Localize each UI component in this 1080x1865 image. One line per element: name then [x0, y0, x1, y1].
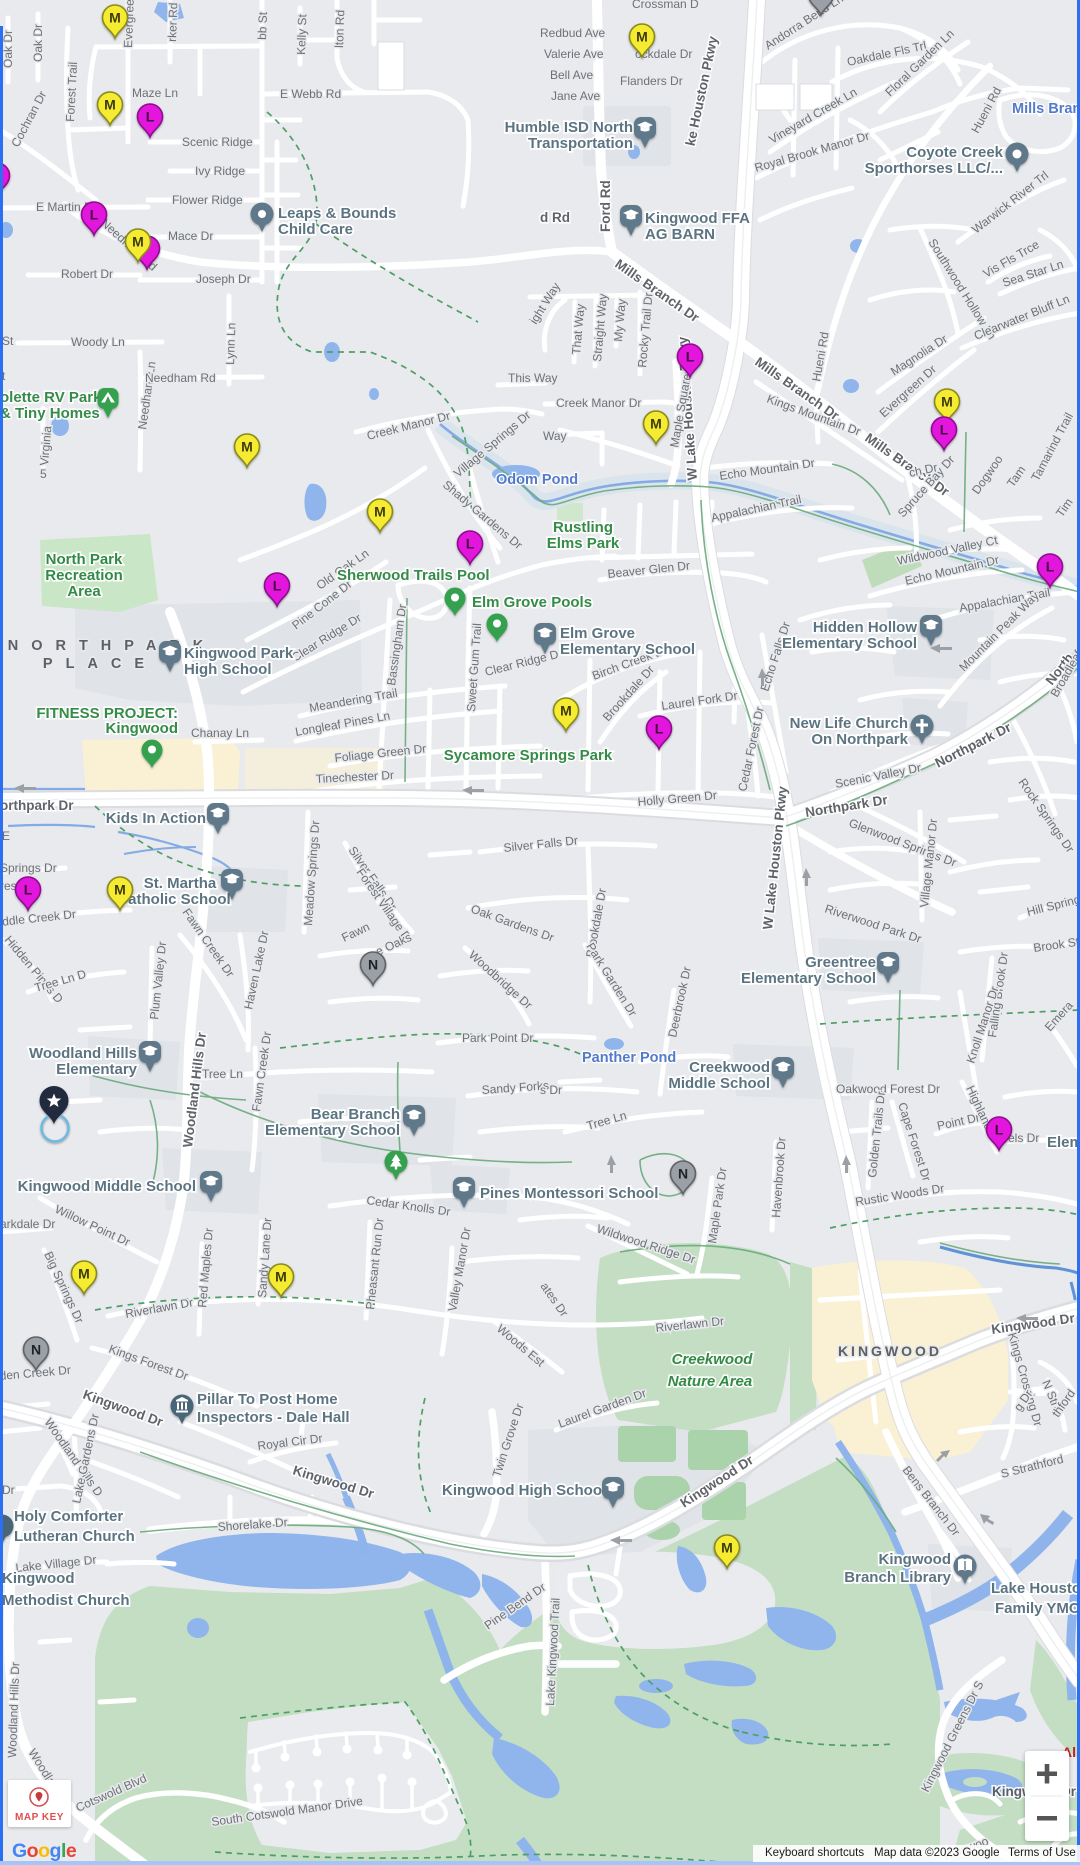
svg-text:Creek Manor Dr: Creek Manor Dr — [556, 396, 641, 410]
svg-text:St. Martha: St. Martha — [144, 875, 217, 892]
svg-text:Dr: Dr — [2, 1483, 15, 1497]
svg-text:Creekwood: Creekwood — [689, 1059, 770, 1076]
svg-text:& Tiny Homes: & Tiny Homes — [0, 405, 100, 422]
svg-text:N: N — [31, 1342, 41, 1358]
svg-text:Transportation: Transportation — [528, 135, 633, 152]
svg-text:Bear Branch: Bear Branch — [311, 1106, 400, 1123]
svg-text:Coyote Creek: Coyote Creek — [906, 144, 1003, 161]
svg-text:Hidden Hollow: Hidden Hollow — [813, 619, 917, 636]
svg-text:orthpark Dr: orthpark Dr — [0, 798, 74, 813]
svg-text:New Life Church: New Life Church — [790, 715, 908, 732]
svg-text:Woodland Hills: Woodland Hills — [29, 1045, 137, 1062]
svg-text:Leaps & Bounds: Leaps & Bounds — [278, 205, 396, 222]
svg-text:E Webb Rd: E Webb Rd — [280, 87, 341, 101]
svg-text:M: M — [241, 439, 253, 455]
svg-text:Oakwood Forest Dr: Oakwood Forest Dr — [836, 1082, 940, 1096]
svg-text:M: M — [650, 416, 662, 432]
svg-text:Inspectors - Dale Hall: Inspectors - Dale Hall — [197, 1409, 350, 1426]
svg-text:Elementary School: Elementary School — [265, 1122, 400, 1139]
svg-text:Branch Library: Branch Library — [844, 1569, 951, 1586]
svg-text:M: M — [941, 394, 953, 410]
svg-text:rker Rd: rker Rd — [165, 2, 180, 42]
svg-text:On Northpark: On Northpark — [811, 731, 908, 748]
svg-text:Oak Dr: Oak Dr — [31, 24, 45, 62]
svg-text:Elm Grove: Elm Grove — [560, 625, 635, 642]
svg-text:Odom Pond: Odom Pond — [496, 472, 578, 488]
svg-text:Valerie Ave: Valerie Ave — [544, 47, 604, 61]
svg-text:Flower Ridge: Flower Ridge — [172, 193, 243, 207]
svg-text:N: N — [368, 957, 378, 973]
svg-text:Elms Park: Elms Park — [547, 535, 620, 552]
svg-text:High School: High School — [184, 661, 272, 678]
svg-text:KINGWOOD: KINGWOOD — [838, 1343, 942, 1359]
svg-text:Kingwood Park: Kingwood Park — [184, 645, 294, 662]
svg-text:Robert Dr: Robert Dr — [61, 267, 113, 281]
svg-text:Redbud Ave: Redbud Ave — [540, 26, 605, 40]
svg-text:Needham Rd: Needham Rd — [145, 371, 216, 385]
svg-text:Pines Montessori School: Pines Montessori School — [480, 1185, 658, 1202]
svg-text:Maze Ln: Maze Ln — [132, 86, 178, 100]
svg-text:L: L — [995, 1122, 1004, 1138]
svg-text:This Way: This Way — [508, 371, 558, 385]
svg-text:Recreation: Recreation — [45, 567, 123, 584]
svg-text:Elementary School: Elementary School — [560, 641, 695, 658]
svg-text:Ivy Ridge: Ivy Ridge — [195, 164, 245, 178]
svg-text:L: L — [146, 109, 155, 125]
svg-text:s Dr: s Dr — [540, 1083, 562, 1097]
svg-text:Tree Ln: Tree Ln — [202, 1067, 243, 1081]
svg-text:M: M — [721, 1540, 733, 1556]
svg-text:M: M — [114, 882, 126, 898]
svg-text:M: M — [560, 703, 572, 719]
svg-text:L: L — [466, 536, 475, 552]
svg-text:lton Rd: lton Rd — [332, 10, 347, 48]
svg-text:Rustling: Rustling — [553, 519, 613, 536]
svg-text:Joseph Dr: Joseph Dr — [196, 272, 251, 286]
svg-text:Scenic Ridge: Scenic Ridge — [182, 135, 253, 149]
svg-text:Sycamore Springs Park: Sycamore Springs Park — [444, 747, 613, 764]
svg-text:Chanay Ln: Chanay Ln — [191, 726, 249, 740]
svg-text:Lake Housto: Lake Housto — [991, 1580, 1080, 1597]
svg-text:Middle School: Middle School — [668, 1075, 770, 1092]
svg-text:L: L — [655, 721, 664, 737]
svg-text:Mace Dr: Mace Dr — [168, 229, 213, 243]
svg-text:Humble ISD North: Humble ISD North — [505, 119, 633, 136]
svg-text:Nature Area: Nature Area — [668, 1373, 752, 1390]
svg-text:Elm Grove Pools: Elm Grove Pools — [472, 594, 592, 611]
svg-text:Child Care: Child Care — [278, 221, 353, 238]
svg-text:M: M — [104, 97, 116, 113]
svg-text:Mills Branc: Mills Branc — [1012, 101, 1080, 117]
svg-text:Way: Way — [543, 429, 567, 443]
svg-text:Elementary School: Elementary School — [782, 635, 917, 652]
svg-text:d Rd: d Rd — [540, 210, 570, 225]
svg-text:L: L — [24, 882, 33, 898]
svg-text:PLACE: PLACE — [43, 656, 157, 672]
svg-text:Springs Dr: Springs Dr — [0, 861, 57, 875]
svg-text:St: St — [2, 334, 14, 348]
svg-text:Sherwood Trails Pool: Sherwood Trails Pool — [337, 567, 490, 584]
svg-text:Woody Ln: Woody Ln — [71, 335, 125, 349]
svg-text:Kingwood High School: Kingwood High School — [442, 1482, 606, 1499]
svg-text:L: L — [90, 207, 99, 223]
svg-text:M: M — [78, 1266, 90, 1282]
svg-text:M: M — [636, 29, 648, 45]
svg-text:M: M — [132, 234, 144, 250]
svg-text:Greentree: Greentree — [805, 954, 876, 971]
svg-text:Flanders Dr: Flanders Dr — [620, 74, 683, 88]
svg-text:olette RV Park: olette RV Park — [0, 389, 102, 406]
svg-text:Bell Ave: Bell Ave — [550, 68, 593, 82]
svg-text:M: M — [275, 1269, 287, 1285]
svg-text:Lutheran Church: Lutheran Church — [14, 1528, 135, 1545]
svg-text:L: L — [686, 349, 695, 365]
svg-text:North Park: North Park — [46, 551, 123, 568]
svg-text:Elementary School: Elementary School — [741, 970, 876, 987]
svg-text:Ford Rd: Ford Rd — [598, 180, 613, 232]
svg-text:Panther Pond: Panther Pond — [582, 1050, 676, 1066]
svg-text:Sporthorses LLC/...: Sporthorses LLC/... — [865, 160, 1003, 177]
svg-text:Catholic School: Catholic School — [117, 891, 230, 908]
svg-text:Lynn Ln: Lynn Ln — [223, 322, 238, 365]
svg-text:Methodist Church: Methodist Church — [2, 1592, 130, 1609]
svg-text:Kingwood Middle School: Kingwood Middle School — [18, 1178, 196, 1195]
svg-text:E: E — [2, 829, 10, 843]
svg-text:L: L — [940, 422, 949, 438]
svg-text:Elementary: Elementary — [56, 1061, 138, 1078]
svg-text:M: M — [374, 504, 386, 520]
svg-text:L: L — [273, 578, 282, 594]
svg-text:Kids In Action: Kids In Action — [106, 810, 206, 827]
svg-text:Elem: Elem — [1047, 1134, 1080, 1151]
svg-text:Kingwood: Kingwood — [106, 720, 178, 737]
svg-text:L: L — [1046, 559, 1055, 575]
svg-text:5: 5 — [40, 467, 47, 481]
svg-text:Crossman D: Crossman D — [632, 0, 699, 11]
svg-text:M: M — [109, 10, 121, 26]
svg-text:Creekwood: Creekwood — [672, 1351, 754, 1368]
svg-text:Jane Ave: Jane Ave — [551, 89, 600, 103]
svg-text:Pillar To Post Home: Pillar To Post Home — [197, 1391, 338, 1408]
svg-text:Kingwood: Kingwood — [879, 1551, 951, 1568]
svg-text:Kelly St: Kelly St — [294, 13, 309, 55]
svg-text:Area: Area — [67, 583, 101, 600]
svg-text:bb St: bb St — [255, 11, 270, 40]
svg-text:Family YMC.: Family YMC. — [995, 1600, 1080, 1617]
svg-text:Park Point Dr: Park Point Dr — [462, 1031, 533, 1045]
svg-text:Oak Dr: Oak Dr — [1, 30, 15, 68]
svg-text:AG BARN: AG BARN — [645, 226, 715, 243]
svg-text:arkdale Dr: arkdale Dr — [0, 1217, 55, 1231]
svg-text:Holy Comforter: Holy Comforter — [14, 1508, 123, 1525]
svg-text:Kingwood FFA: Kingwood FFA — [645, 210, 750, 227]
svg-text:Kingwood: Kingwood — [2, 1570, 74, 1587]
svg-text:N: N — [678, 1166, 688, 1182]
